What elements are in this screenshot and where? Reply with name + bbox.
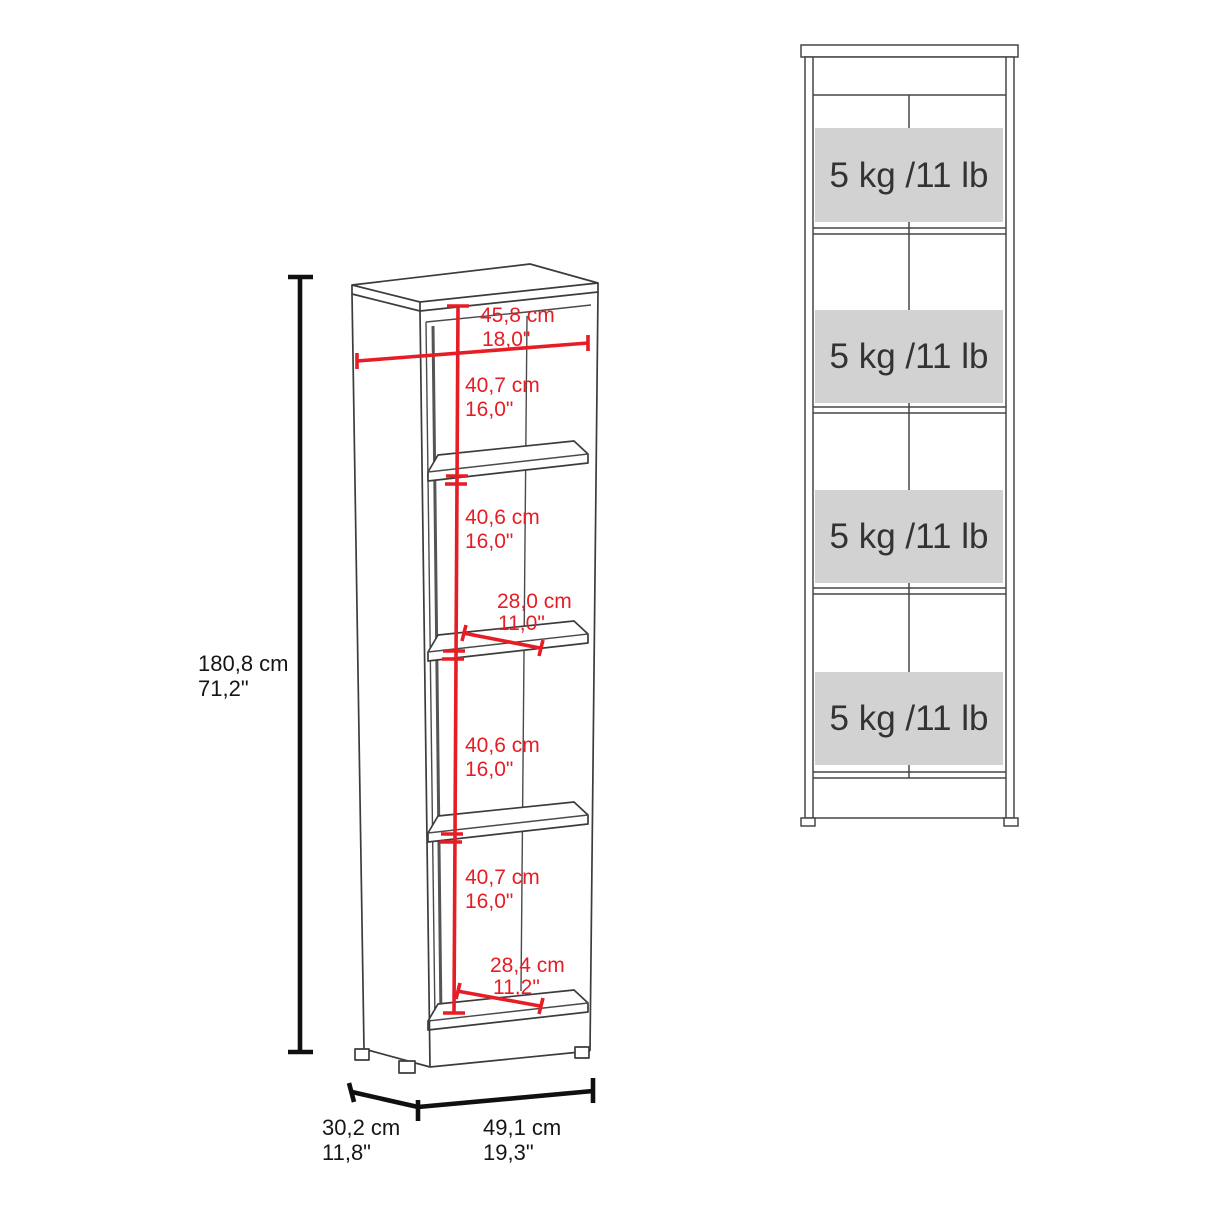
section3-cm-label: 40,6 cm — [465, 734, 540, 757]
depth-cm-label: 30,2 cm — [322, 1115, 400, 1140]
front-left-edge — [420, 311, 430, 1067]
diagram-canvas: 45,8 cm 18,0" 40,7 cm 16,0" 40,6 cm 16,0… — [0, 0, 1214, 1214]
feet-3d — [355, 1047, 589, 1073]
section2-in-label: 16,0" — [465, 530, 513, 553]
section2-cm-label: 40,6 cm — [465, 506, 540, 529]
height-dimension-line — [288, 277, 313, 1052]
section4-cm-label: 40,7 cm — [465, 866, 540, 889]
inner-width-cm-label: 45,8 cm — [480, 304, 555, 327]
depth-in-label: 11,8" — [322, 1140, 371, 1165]
load-label-3: 5 kg /11 lb — [830, 517, 989, 556]
base-depth-cm-label: 28,4 cm — [490, 954, 565, 977]
shelf-depth-in-label: 11,0" — [498, 612, 545, 635]
shelf-3 — [428, 802, 588, 842]
bottom-front-edge — [430, 1051, 590, 1067]
section1-cm-label: 40,7 cm — [465, 374, 540, 397]
section1-in-label: 16,0" — [465, 398, 513, 421]
inner-width-in-label: 18,0" — [482, 328, 530, 351]
height-cm-label: 180,8 cm — [198, 651, 289, 676]
load-label-2: 5 kg /11 lb — [830, 337, 989, 376]
width-cm-label: 49,1 cm — [483, 1115, 561, 1140]
inner-width-dimension-line — [357, 335, 588, 369]
height-in-label: 71,2" — [198, 676, 249, 701]
section3-in-label: 16,0" — [465, 758, 513, 781]
dimension-diagram: 45,8 cm 18,0" 40,7 cm 16,0" 40,6 cm 16,0… — [0, 0, 1214, 1214]
feet-front — [801, 818, 1018, 826]
load-label-1: 5 kg /11 lb — [830, 156, 989, 195]
section4-in-label: 16,0" — [465, 890, 513, 913]
perspective-view: 45,8 cm 18,0" 40,7 cm 16,0" 40,6 cm 16,0… — [198, 264, 598, 1165]
load-label-4: 5 kg /11 lb — [830, 699, 989, 738]
front-top-cap — [801, 45, 1018, 57]
base-depth-in-label: 11,2" — [493, 976, 540, 999]
front-right-edge — [590, 292, 598, 1051]
shelf-depth-cm-label: 28,0 cm — [497, 590, 572, 613]
depth-dimension-line — [349, 1083, 418, 1107]
width-in-label: 19,3" — [483, 1140, 534, 1165]
back-corner-seam-line — [521, 316, 527, 991]
left-side-edges — [352, 294, 430, 1067]
front-view: 5 kg /11 lb 5 kg /11 lb 5 kg /11 lb 5 kg… — [801, 45, 1018, 826]
